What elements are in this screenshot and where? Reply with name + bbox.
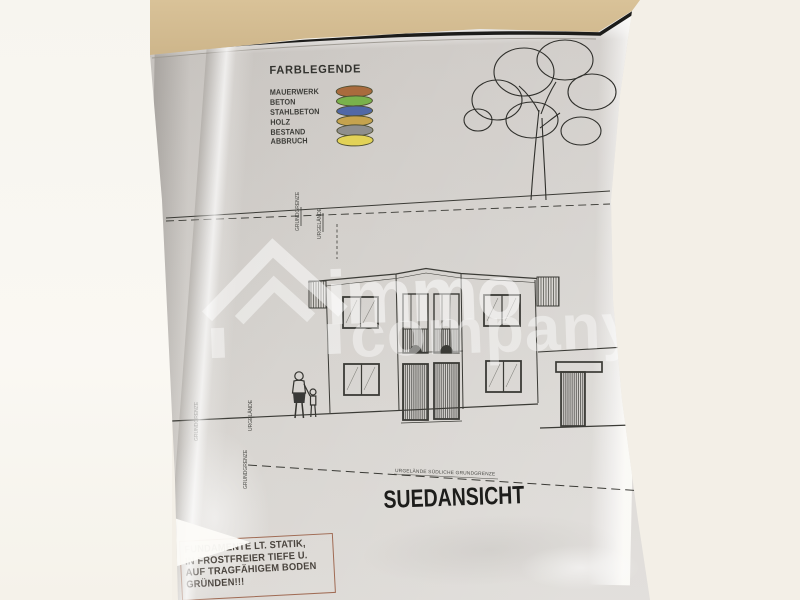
annex: [538, 347, 632, 428]
legend-label: BESTAND: [270, 126, 330, 136]
view-title: SUEDANSICHT: [383, 481, 525, 515]
background-left: [0, 0, 172, 600]
boundary-label-left-2: URGELÄNDE: [247, 399, 254, 431]
annex-door: [561, 372, 585, 426]
boundary-label-top-1: GRUNDGRENZE: [295, 191, 301, 231]
boundary-label-left-1: GRUNDGRENZE: [194, 401, 200, 441]
legend-label: MAUERWERK: [270, 87, 330, 97]
tree: [464, 40, 616, 200]
legend-item: ABBRUCH: [271, 135, 374, 147]
boundary-label-top-2: URGELÄNDE: [316, 207, 323, 239]
people-figures: [293, 372, 317, 418]
legend-label: BETON: [270, 97, 330, 107]
door-lower-1: [403, 364, 428, 420]
legend-label: ABBRUCH: [271, 136, 331, 146]
color-legend: FARBLEGENDE MAUERWERK BETON STAHLBETON H…: [269, 63, 373, 147]
boundary-label-left-3: GRUNDGRENZE: [243, 449, 249, 489]
building: [308, 269, 559, 424]
parapet-hatch-left: [309, 281, 326, 308]
door-lower-2: [434, 363, 459, 419]
legend-label: HOLZ: [270, 117, 330, 127]
legend-title: FARBLEGENDE: [269, 63, 368, 77]
photo-of-plan: GRUNDGRENZE URGELÄNDE: [0, 0, 800, 600]
annex-transom: [556, 362, 602, 372]
parapet-hatch-right: [537, 277, 559, 306]
legend-label: STAHLBETON: [270, 107, 330, 117]
legend-swatch-abbruch: [337, 134, 374, 146]
terrain-lines-top: [166, 191, 610, 259]
